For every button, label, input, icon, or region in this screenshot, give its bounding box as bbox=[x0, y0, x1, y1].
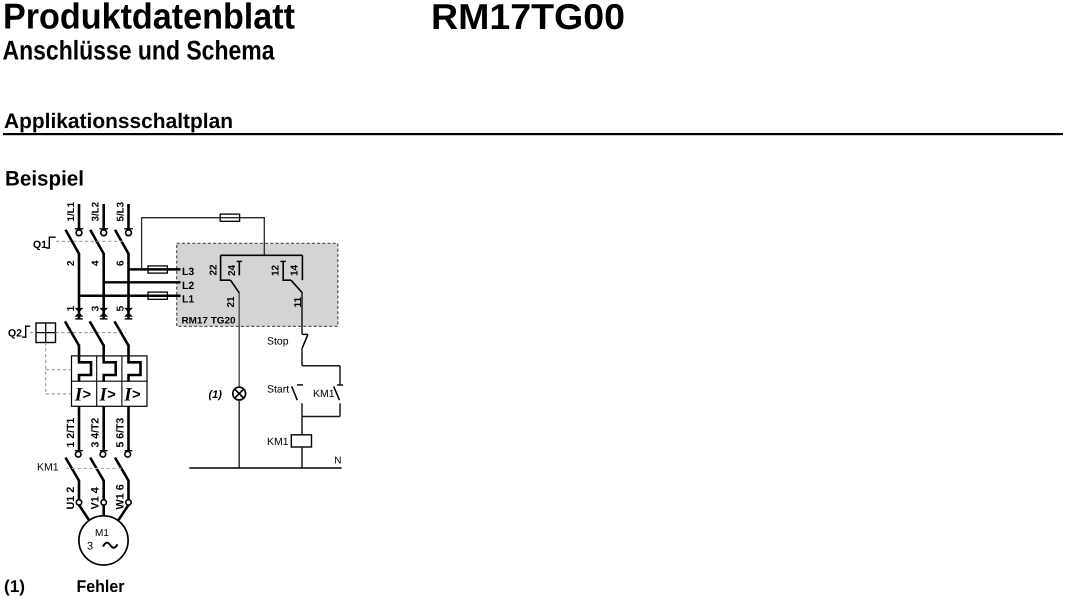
svg-text:1 2/T1: 1 2/T1 bbox=[65, 418, 77, 448]
svg-text:1/L1: 1/L1 bbox=[66, 201, 77, 221]
svg-text:I: I bbox=[123, 385, 132, 406]
svg-text:2: 2 bbox=[66, 260, 77, 266]
svg-text:14: 14 bbox=[290, 264, 301, 276]
svg-text:>: > bbox=[107, 387, 115, 403]
svg-text:RM17 TG20: RM17 TG20 bbox=[182, 316, 236, 327]
svg-text:I: I bbox=[99, 385, 108, 406]
svg-text:>: > bbox=[132, 387, 140, 403]
svg-text:L2: L2 bbox=[182, 280, 194, 292]
svg-text:KM1: KM1 bbox=[313, 388, 335, 400]
svg-text:6: 6 bbox=[115, 260, 126, 266]
svg-text:Q1: Q1 bbox=[33, 239, 47, 251]
svg-text:5 6/T3: 5 6/T3 bbox=[114, 418, 126, 448]
svg-text:12: 12 bbox=[271, 264, 282, 276]
svg-text:Fehler: Fehler bbox=[77, 577, 125, 596]
svg-text:U1 2: U1 2 bbox=[65, 487, 77, 510]
svg-text:21: 21 bbox=[226, 296, 237, 308]
svg-text:3: 3 bbox=[87, 541, 93, 553]
svg-text:Q2: Q2 bbox=[8, 328, 22, 340]
svg-text:Beispiel: Beispiel bbox=[5, 168, 84, 191]
svg-text:22: 22 bbox=[209, 264, 220, 276]
svg-text:>: > bbox=[83, 387, 91, 403]
svg-text:4: 4 bbox=[91, 260, 102, 266]
svg-text:3/L2: 3/L2 bbox=[91, 201, 102, 221]
svg-text:(1): (1) bbox=[4, 577, 25, 596]
svg-text:L3: L3 bbox=[182, 266, 194, 278]
svg-text:N: N bbox=[334, 456, 341, 467]
svg-text:W1 6: W1 6 bbox=[115, 484, 127, 509]
svg-text:(1): (1) bbox=[209, 389, 223, 401]
svg-text:Stop: Stop bbox=[267, 335, 289, 347]
svg-text:I: I bbox=[74, 385, 83, 406]
svg-text:24: 24 bbox=[227, 264, 238, 276]
svg-text:3 4/T2: 3 4/T2 bbox=[90, 418, 102, 448]
svg-text:RM17TG00: RM17TG00 bbox=[431, 0, 625, 37]
svg-text:Applikationsschaltplan: Applikationsschaltplan bbox=[4, 110, 233, 133]
svg-text:KM1: KM1 bbox=[267, 436, 289, 448]
svg-text:Produktdatenblatt: Produktdatenblatt bbox=[3, 0, 295, 37]
svg-text:Start: Start bbox=[267, 384, 289, 396]
svg-text:M1: M1 bbox=[95, 528, 109, 539]
svg-text:KM1: KM1 bbox=[37, 461, 59, 473]
svg-text:V1 4: V1 4 bbox=[90, 487, 102, 509]
svg-text:5/L3: 5/L3 bbox=[115, 201, 126, 221]
svg-text:Anschlüsse und Schema: Anschlüsse und Schema bbox=[3, 36, 276, 66]
svg-text:L1: L1 bbox=[182, 293, 194, 305]
